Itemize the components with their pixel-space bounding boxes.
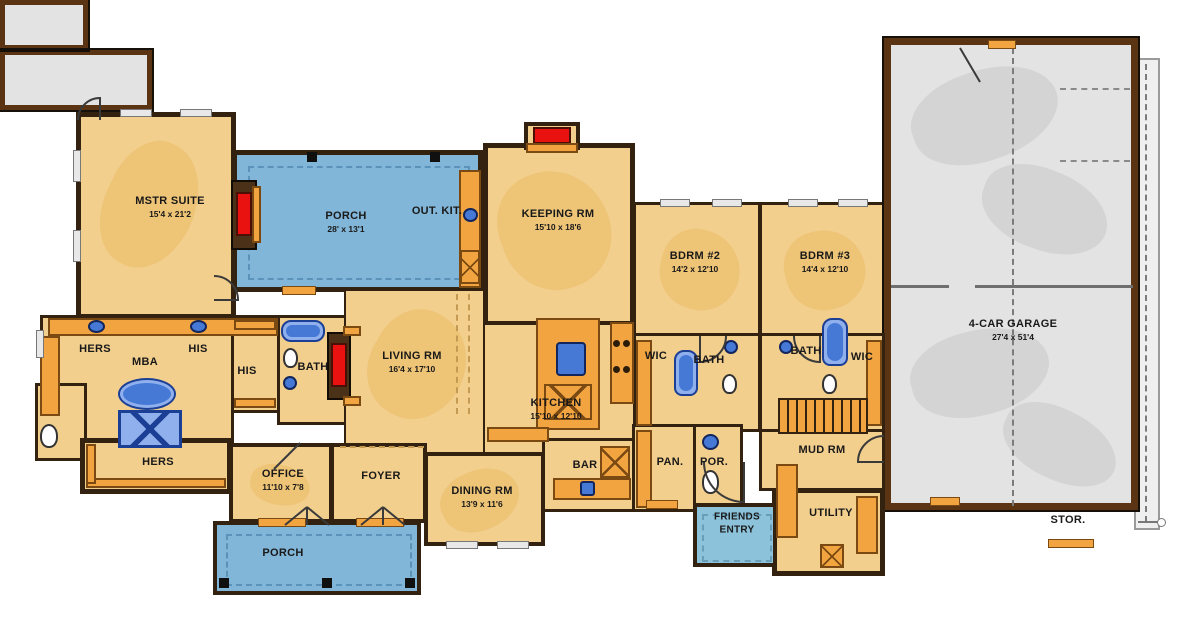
label-out-kit: OUT. KIT. — [412, 205, 462, 219]
room-dims: 15'10 x 18'6 — [522, 222, 595, 233]
stor-door-sill — [1048, 539, 1094, 548]
kitchen-range-wall — [610, 322, 634, 404]
room-name: BDRM #3 — [800, 250, 850, 264]
label-mstr-suite: MSTR SUITE 15'4 x 21'2 — [135, 195, 205, 219]
room-name: POR. — [700, 456, 728, 470]
living-fireplace-cabinet — [343, 396, 361, 406]
label-hers-vanity: HERS — [79, 343, 111, 357]
porch-bottom-dashes — [226, 534, 412, 586]
label-living: LIVING RM 16'4 x 17'10 — [382, 350, 442, 374]
garage-stoop-door — [988, 40, 1016, 49]
garage-rear-door — [930, 497, 960, 506]
room-name: BATH — [791, 345, 822, 359]
porch-fireplace-hearth — [252, 186, 261, 243]
master-bath-tub — [281, 320, 325, 342]
room-name: BATH — [298, 361, 329, 375]
room-name: MBA — [132, 356, 158, 370]
label-wic2: WIC — [645, 350, 667, 364]
room-name: HERS — [79, 343, 111, 357]
label-wic3: WIC — [851, 351, 873, 365]
garage-divider-wall — [975, 285, 1133, 288]
window — [660, 199, 690, 207]
ceiling-break-line — [468, 294, 470, 414]
room-name: HERS — [142, 456, 174, 470]
label-bath2: BATH — [694, 354, 725, 368]
room-name: PAN. — [657, 456, 684, 470]
room-name: HIS — [188, 343, 207, 357]
porch-column — [307, 152, 317, 162]
hers-sink — [88, 320, 105, 333]
master-bath-sink — [283, 376, 297, 390]
foyer-ceiling-dash — [340, 446, 424, 448]
room-name: OUT. KIT. — [412, 205, 462, 219]
utility-washer — [820, 544, 844, 568]
powder-sink — [702, 434, 719, 450]
room-name: UTILITY — [809, 507, 853, 521]
living-fireplace-firebox — [331, 343, 347, 387]
window — [73, 230, 81, 262]
label-hers-closet: HERS — [142, 456, 174, 470]
room-name: PORCH — [325, 210, 366, 224]
master-toilet — [40, 424, 58, 448]
powder-toilet — [702, 470, 719, 494]
range-burner — [613, 366, 620, 373]
room-name: OFFICE — [262, 468, 304, 482]
bath3-toilet — [822, 374, 837, 394]
label-keeping: KEEPING RM 15'10 x 18'6 — [522, 208, 595, 232]
room-dims: 27'4 x 51'4 — [969, 332, 1058, 343]
room-dims: 13'9 x 11'6 — [451, 499, 512, 510]
garage-door-track — [1060, 88, 1130, 90]
ceiling-break-line — [456, 294, 458, 414]
range-burner — [623, 366, 630, 373]
pantry-shelving — [636, 430, 652, 508]
his-closet-shelf — [234, 398, 276, 408]
label-kitchen: KITCHEN 15'10 x 12'10 — [530, 397, 581, 421]
label-mba: MBA — [132, 356, 158, 370]
room-name: HIS — [237, 365, 256, 379]
room-dims: 28' x 13'1 — [325, 224, 366, 235]
garage-stoop — [0, 0, 88, 50]
garage-door-track — [1060, 160, 1130, 162]
garage-divider-wall — [891, 285, 949, 288]
porch-column — [219, 578, 229, 588]
porch-column — [405, 578, 415, 588]
porch-door-sill — [282, 286, 316, 295]
label-stor: STOR. — [1051, 514, 1086, 528]
room-name: KEEPING RM — [522, 208, 595, 222]
label-bdrm3: BDRM #3 14'4 x 12'10 — [800, 250, 850, 274]
label-porch-top: PORCH 28' x 13'1 — [325, 210, 366, 234]
label-bath3: BATH — [791, 345, 822, 359]
bar-cabinet — [600, 446, 630, 478]
garage-apron-dash — [1145, 64, 1147, 522]
floor-plan: MSTR SUITE 15'4 x 21'2 PORCH 28' x 13'1 … — [0, 0, 1200, 617]
label-master-bath: BATH — [298, 361, 329, 375]
staircase — [778, 398, 868, 434]
window — [36, 330, 44, 358]
room-stor — [0, 50, 152, 110]
label-his-vanity: HIS — [188, 343, 207, 357]
stor-door-swing — [1138, 521, 1160, 523]
porch-column — [322, 578, 332, 588]
window — [712, 199, 742, 207]
keeping-fireplace-hearth — [526, 143, 578, 153]
room-name: BDRM #2 — [670, 250, 720, 264]
window — [788, 199, 818, 207]
label-pan: PAN. — [657, 456, 684, 470]
label-bar: BAR — [573, 459, 598, 473]
window — [73, 150, 81, 182]
window — [838, 199, 868, 207]
his-closet-shelf — [234, 320, 276, 330]
outdoor-kitchen-grill — [460, 250, 480, 284]
label-mud: MUD RM — [798, 444, 845, 458]
friends-door-sill — [646, 500, 678, 509]
front-door-sill — [356, 518, 404, 527]
room-name: MSTR SUITE — [135, 195, 205, 209]
room-name: WIC — [645, 350, 667, 364]
label-porch-bottom: PORCH — [262, 547, 303, 561]
room-name: KITCHEN — [530, 397, 581, 411]
garage-center-line — [1012, 48, 1014, 506]
hers-closet-shelf — [86, 444, 96, 484]
room-name: DINING RM — [451, 485, 512, 499]
porch-fireplace-firebox — [236, 192, 252, 236]
room-name: FOYER — [361, 470, 400, 484]
room-name: 4-CAR GARAGE — [969, 318, 1058, 332]
kitchen-island-sink — [556, 342, 586, 376]
label-dining: DINING RM 13'9 x 11'6 — [451, 485, 512, 509]
bar-sink — [580, 481, 595, 496]
label-his-closet: HIS — [237, 365, 256, 379]
master-bath-toilet — [283, 348, 298, 368]
room-name: PORCH — [262, 547, 303, 561]
hers-closet-shelf — [86, 478, 226, 488]
room-dims: 14'2 x 12'10 — [670, 264, 720, 275]
mud-lockers — [776, 464, 798, 538]
label-office: OFFICE 11'10 x 7'8 — [262, 468, 304, 492]
bath3-tub — [822, 318, 848, 366]
label-por: POR. — [700, 456, 728, 470]
bath2-sink — [724, 340, 738, 354]
bath2-toilet — [722, 374, 737, 394]
kitchen-south-counter — [487, 427, 549, 442]
office-door-sill — [258, 518, 306, 527]
living-fireplace-cabinet — [343, 326, 361, 336]
room-name: BAR — [573, 459, 598, 473]
room-dims: 16'4 x 17'10 — [382, 364, 442, 375]
label-friends-entry: FRIENDS ENTRY — [708, 512, 766, 537]
room-name: BATH — [694, 354, 725, 368]
outdoor-kitchen-sink — [463, 208, 478, 222]
utility-counter — [856, 496, 878, 554]
room-dims: 11'10 x 7'8 — [262, 482, 304, 493]
window — [180, 109, 212, 117]
room-dims: 15'10 x 12'10 — [530, 411, 581, 422]
range-burner — [623, 340, 630, 347]
master-shower — [118, 410, 182, 448]
room-name: STOR. — [1051, 514, 1086, 528]
room-name: MUD RM — [798, 444, 845, 458]
porch-column — [430, 152, 440, 162]
room-name: WIC — [851, 351, 873, 365]
window — [446, 541, 478, 549]
master-tub — [118, 378, 176, 410]
label-garage: 4-CAR GARAGE 27'4 x 51'4 — [969, 318, 1058, 342]
his-sink — [190, 320, 207, 333]
label-foyer: FOYER — [361, 470, 400, 484]
room-dims: 15'4 x 21'2 — [135, 209, 205, 220]
window — [497, 541, 529, 549]
label-utility: UTILITY — [809, 507, 853, 521]
window — [120, 109, 152, 117]
keeping-fireplace-firebox — [533, 127, 571, 144]
range-burner — [613, 340, 620, 347]
room-dims: 14'4 x 12'10 — [800, 264, 850, 275]
room-name: FRIENDS ENTRY — [708, 512, 766, 537]
label-bdrm2: BDRM #2 14'2 x 12'10 — [670, 250, 720, 274]
room-name: LIVING RM — [382, 350, 442, 364]
